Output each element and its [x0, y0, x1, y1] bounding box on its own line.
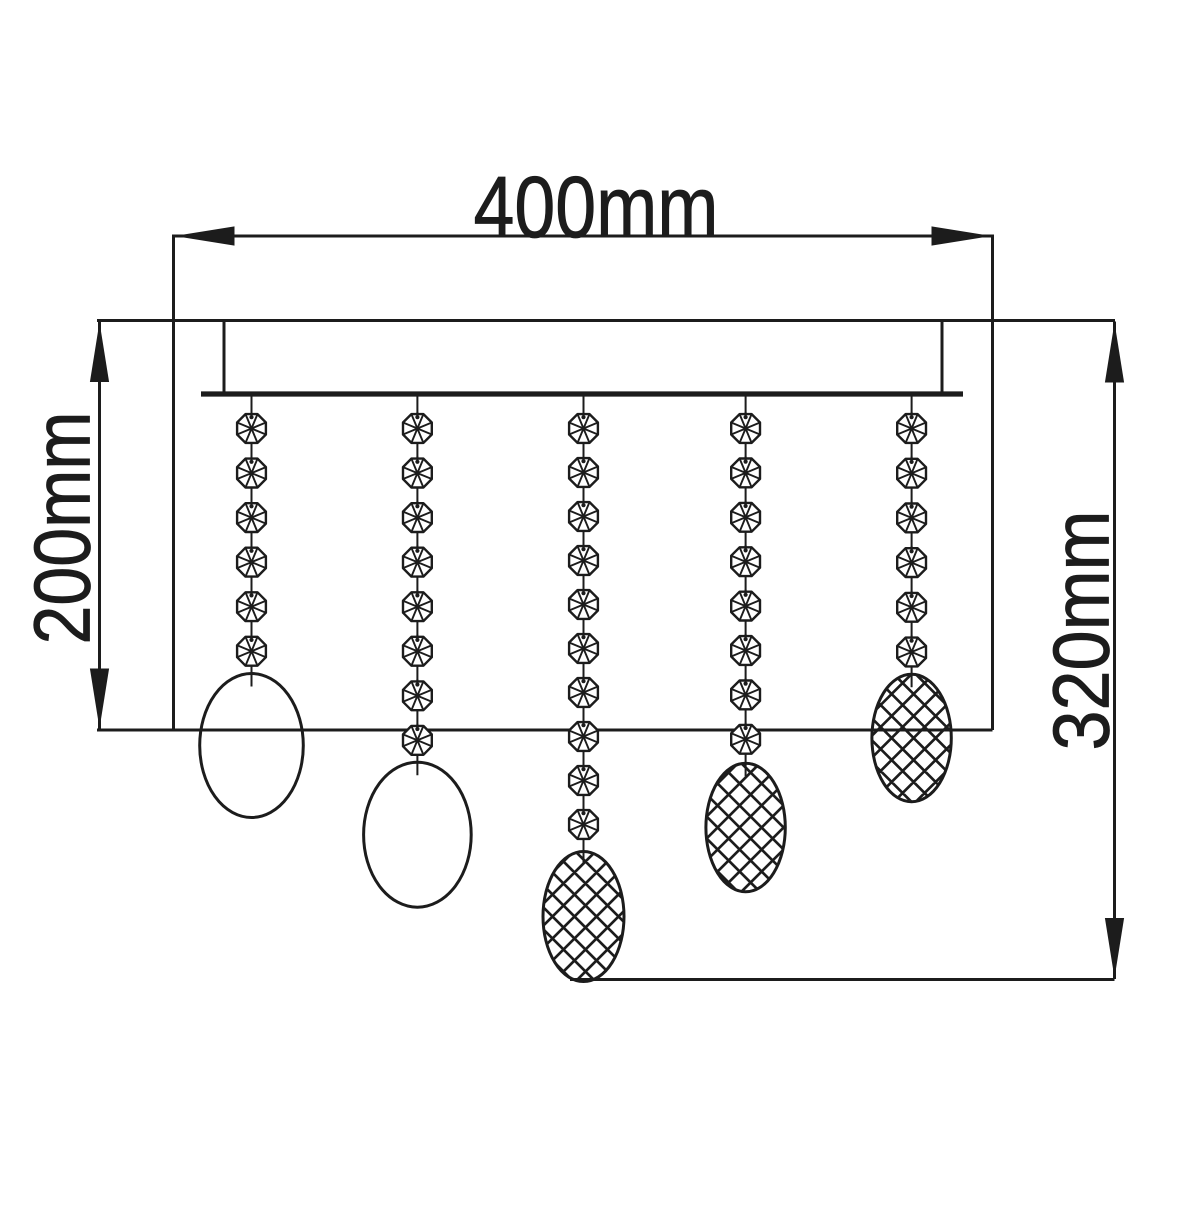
svg-text:200mm: 200mm — [18, 412, 107, 645]
svg-text:320mm: 320mm — [1037, 511, 1126, 751]
svg-text:400mm: 400mm — [474, 159, 719, 256]
